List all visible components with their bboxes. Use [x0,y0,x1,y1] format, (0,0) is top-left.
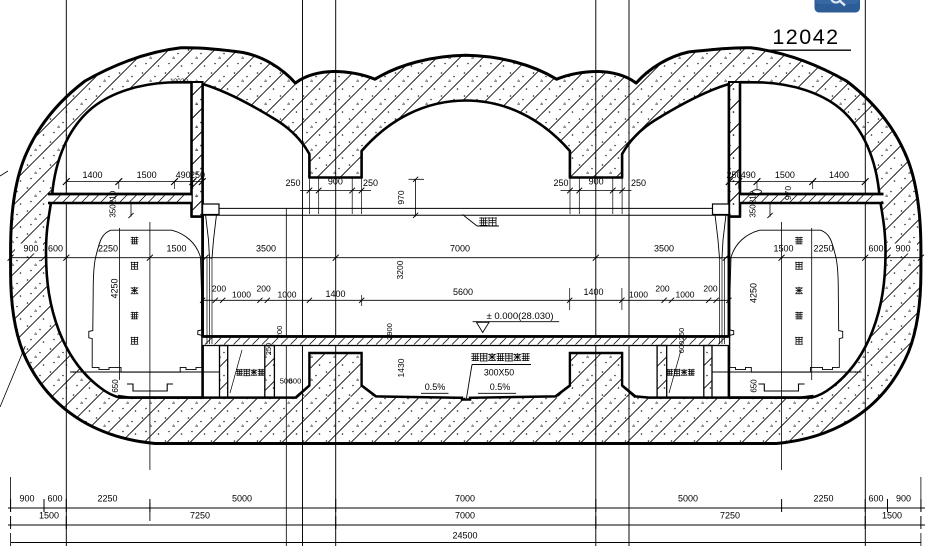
svg-text:7250: 7250 [190,511,210,521]
svg-text:0.5%: 0.5% [490,382,511,392]
svg-text:650: 650 [111,379,120,393]
svg-text:2250: 2250 [98,244,118,254]
svg-text:970: 970 [783,186,793,200]
svg-text:5600: 5600 [453,287,473,297]
svg-text:12042: 12042 [772,25,839,49]
svg-text:600: 600 [677,341,686,354]
svg-text:1000: 1000 [278,290,297,300]
svg-text:4250: 4250 [110,278,120,298]
svg-text:250: 250 [190,170,205,180]
svg-text:1500: 1500 [137,170,157,180]
svg-text:200: 200 [703,284,717,294]
svg-text:5000: 5000 [678,494,698,504]
svg-text:900: 900 [19,494,34,504]
svg-text:1400: 1400 [583,287,603,297]
svg-text:2900: 2900 [385,323,394,340]
svg-text:2250: 2250 [97,494,117,504]
svg-text:± 0.000(28.030): ± 0.000(28.030) [486,311,553,322]
svg-text:4250: 4250 [749,283,759,303]
svg-text:650: 650 [750,379,759,393]
svg-text:1500: 1500 [775,170,795,180]
svg-text:1500: 1500 [39,511,59,521]
svg-text:600: 600 [289,377,302,386]
svg-text:1000: 1000 [232,290,251,300]
svg-text:600: 600 [868,244,883,254]
svg-text:900: 900 [589,176,604,186]
svg-text:600: 600 [868,494,883,504]
svg-text:5000: 5000 [232,494,252,504]
svg-text:900: 900 [895,244,910,254]
svg-text:0.5%: 0.5% [425,382,446,392]
svg-text:600: 600 [48,244,63,254]
svg-text:250: 250 [677,328,686,341]
svg-text:2250: 2250 [813,244,833,254]
svg-text:7000: 7000 [455,511,475,521]
svg-text:490: 490 [176,170,191,180]
svg-text:970: 970 [396,190,406,204]
svg-text:250: 250 [553,178,568,188]
svg-text:200: 200 [275,326,284,339]
svg-text:200: 200 [257,284,271,294]
svg-text:1000: 1000 [629,290,648,300]
svg-text:12020: 12020 [170,78,188,85]
svg-text:900: 900 [23,244,38,254]
svg-text:250: 250 [631,178,646,188]
svg-text:1500: 1500 [773,244,793,254]
svg-text:900: 900 [328,176,343,186]
svg-text:1500: 1500 [882,511,902,521]
svg-text:250: 250 [264,343,273,356]
svg-text:200: 200 [655,284,669,294]
svg-text:250: 250 [285,178,300,188]
svg-text:900: 900 [896,494,911,504]
svg-text:3500: 3500 [256,244,276,254]
svg-text:7000: 7000 [455,494,475,504]
svg-text:350: 350 [109,204,118,218]
svg-text:3200: 3200 [395,260,405,279]
svg-text:7000: 7000 [450,244,470,254]
svg-text:1430: 1430 [396,358,406,377]
svg-text:200: 200 [212,284,226,294]
svg-text:1400: 1400 [82,170,102,180]
svg-text:1500: 1500 [166,244,186,254]
svg-text:250: 250 [726,170,741,180]
svg-text:7250: 7250 [720,511,740,521]
svg-text:1400: 1400 [829,170,849,180]
svg-text:3500: 3500 [654,244,674,254]
svg-text:490: 490 [741,170,756,180]
svg-text:600: 600 [47,494,62,504]
svg-text:1400: 1400 [325,289,345,299]
svg-text:1000: 1000 [676,290,695,300]
svg-text:2250: 2250 [813,494,833,504]
svg-text:300X50: 300X50 [484,368,514,378]
svg-text:350: 350 [749,204,758,218]
svg-text:210: 210 [109,190,118,204]
svg-text:24500: 24500 [452,531,477,541]
svg-text:250: 250 [363,178,378,188]
